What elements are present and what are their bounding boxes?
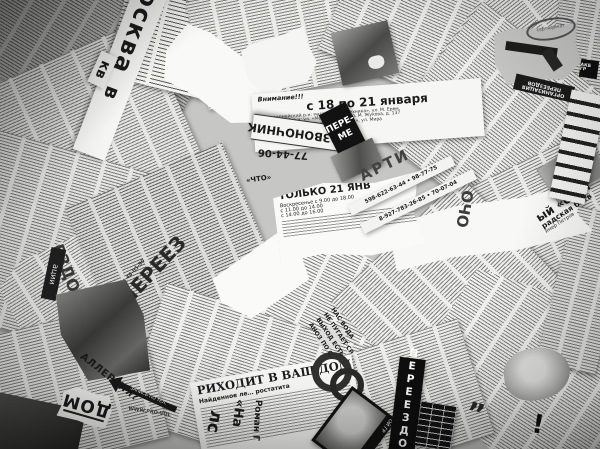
banner-pere-me-line2: МЕ [337,128,355,143]
byline-roman: Роман Г [250,399,262,441]
banner-atsii-text: ации [47,263,59,285]
phone-grid-box [415,401,457,449]
pistol-grip [541,47,562,71]
label-chto: «ЧТО» [246,174,272,184]
phone-upside-down: 77-44-06 [258,146,309,159]
black-chip: АКБ ГР [579,59,599,79]
photo-collage: осква в кв Внимание!!! с 18 по 21 января… [0,0,600,449]
black-chip-text: АКБ ГР [579,63,598,74]
collage-layer: осква в кв Внимание!!! с 18 по 21 января… [0,0,600,449]
headline-ocho: ОЧО [453,189,474,229]
oval-stamp-text: сертификат [537,24,566,33]
headline-ls: лс [203,409,224,434]
headline-na: «На [230,398,246,427]
white-cup [367,54,386,70]
